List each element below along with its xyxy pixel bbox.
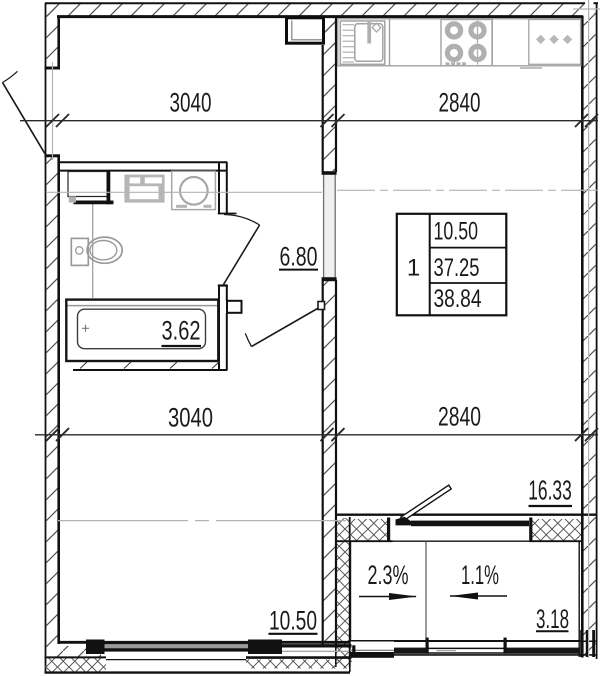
svg-text:3.62: 3.62 (162, 316, 201, 346)
svg-text:10.50: 10.50 (434, 217, 479, 245)
svg-text:37.25: 37.25 (434, 254, 480, 282)
svg-text:1: 1 (407, 255, 420, 282)
svg-text:6.80: 6.80 (280, 242, 318, 272)
svg-text:3.18: 3.18 (536, 604, 569, 634)
svg-text:1.1%: 1.1% (461, 560, 499, 590)
svg-text:2.3%: 2.3% (368, 560, 409, 590)
svg-text:2840: 2840 (439, 88, 481, 118)
svg-text:2840: 2840 (438, 402, 481, 432)
svg-text:10.50: 10.50 (269, 606, 317, 636)
svg-text:3040: 3040 (170, 88, 212, 118)
svg-text:3040: 3040 (168, 403, 213, 433)
svg-text:16.33: 16.33 (528, 475, 572, 506)
svg-text:38.84: 38.84 (434, 285, 482, 313)
